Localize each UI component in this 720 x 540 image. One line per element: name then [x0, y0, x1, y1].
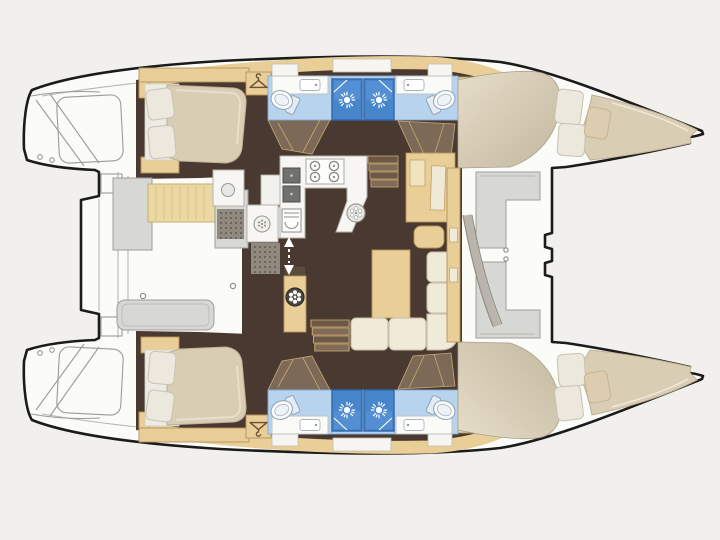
cockpit-table: [117, 300, 214, 330]
salon-forward-trim: [447, 168, 460, 342]
oven-icon: [282, 209, 301, 232]
sofa-cushion: [389, 318, 426, 350]
round-sink-icon: [347, 204, 365, 222]
boat-floorplan-svg: [0, 0, 720, 540]
cockpit-bench-cushion: [148, 184, 215, 222]
galley-appliance: [261, 175, 280, 205]
sofa-cushion: [351, 318, 388, 350]
mast-post: [284, 266, 306, 332]
stove-burner-icon: [306, 159, 344, 184]
boat-floorplan-canvas: [0, 0, 720, 540]
dining-table: [372, 250, 410, 318]
chart-table-seat: [414, 226, 444, 248]
cockpit-bench-back: [113, 178, 152, 250]
